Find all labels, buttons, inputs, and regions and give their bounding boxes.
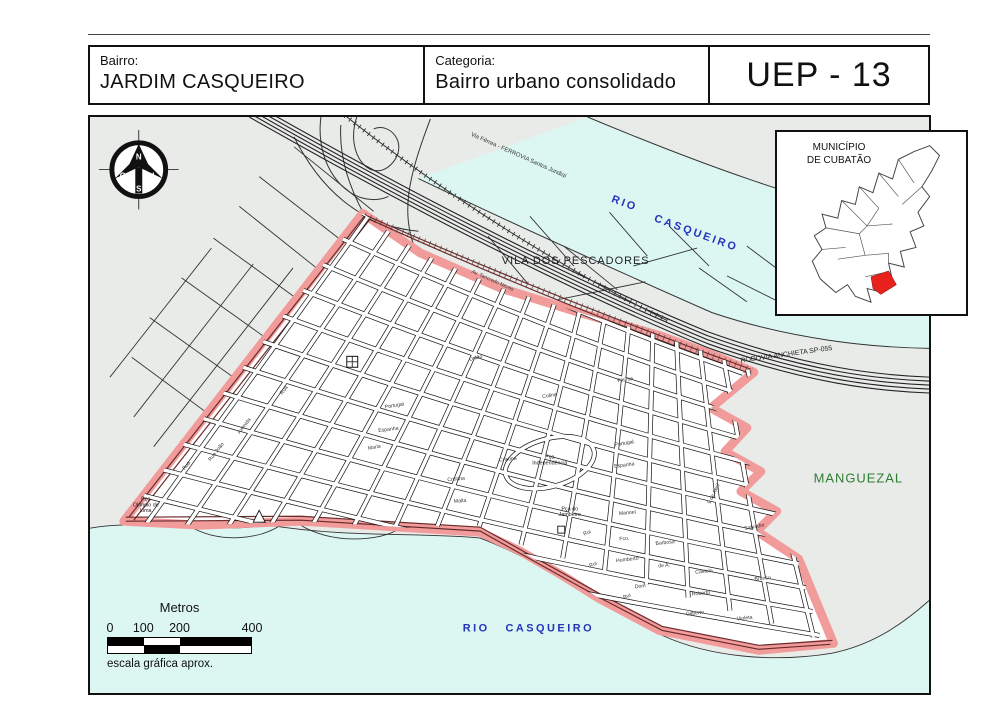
vila-dos-pescadores-label: VILA DOS PESCADORES bbox=[502, 255, 650, 267]
rio-bottom-label-1: RIO bbox=[463, 622, 490, 634]
bairro-label: Bairro: bbox=[100, 53, 423, 68]
scale-bar-title: Metros bbox=[107, 600, 252, 615]
scale-tick: 400 bbox=[242, 621, 263, 635]
inset-title: MUNICÍPIO DE CUBATÃO bbox=[787, 141, 891, 167]
compass-l: L bbox=[152, 172, 157, 181]
praca-square bbox=[558, 526, 565, 533]
uep-cell: UEP - 13 bbox=[710, 47, 928, 103]
scale-bar-ticks: 0 100 200 400 bbox=[107, 621, 252, 637]
street-label: de A. bbox=[658, 562, 670, 569]
rio-bottom-label-2: CASQUEIRO bbox=[506, 622, 595, 634]
manguezal-label: MANGUEZAL bbox=[814, 470, 903, 485]
title-block: Bairro: JARDIM CASQUEIRO Categoria: Bair… bbox=[88, 45, 930, 105]
street-label: Malta bbox=[454, 498, 467, 505]
scale-tick: 200 bbox=[169, 621, 190, 635]
street-label: Fco. bbox=[619, 536, 630, 543]
compass-n: N bbox=[136, 153, 142, 162]
uep-code: UEP - 13 bbox=[746, 56, 891, 95]
place-label: Pça doJambeiro bbox=[559, 506, 581, 518]
scale-tick: 100 bbox=[133, 621, 154, 635]
bairro-cell: Bairro: JARDIM CASQUEIRO bbox=[90, 47, 425, 103]
inset-title-line1: MUNICÍPIO bbox=[787, 141, 891, 154]
scale-bar: Metros 0 100 200 400 escala gráfica apro… bbox=[107, 600, 277, 670]
scale-tick: 0 bbox=[107, 621, 114, 635]
inset-title-line2: DE CUBATÃO bbox=[787, 154, 891, 167]
sheet-top-rule bbox=[88, 34, 930, 35]
bairro-value: JARDIM CASQUEIRO bbox=[100, 71, 423, 94]
municipality-inset: MUNICÍPIO DE CUBATÃO bbox=[775, 130, 968, 316]
categoria-value: Bairro urbano consolidado bbox=[435, 71, 708, 94]
compass-s: S bbox=[136, 184, 141, 193]
map-sheet: { "header": { "bairro_label": "Bairro:",… bbox=[0, 0, 1000, 707]
categoria-label: Categoria: bbox=[435, 53, 708, 68]
scale-bar-caption: escala gráfica aprox. bbox=[107, 658, 277, 670]
scale-bar-graphic bbox=[107, 637, 252, 654]
street-label: Dom bbox=[635, 583, 646, 590]
compass-o: O bbox=[120, 172, 126, 181]
categoria-cell: Categoria: Bairro urbano consolidado bbox=[425, 47, 710, 103]
